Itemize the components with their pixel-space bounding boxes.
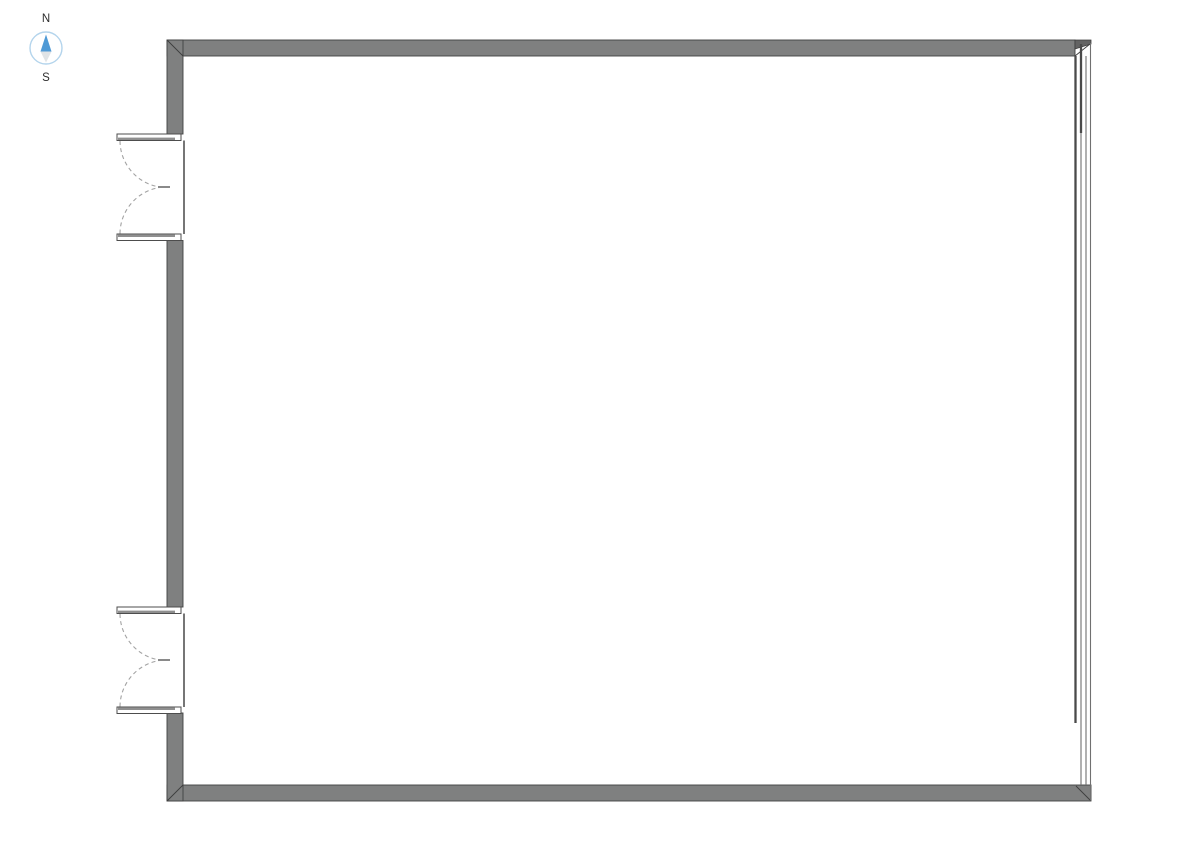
north-wall-end-wedge	[1075, 40, 1091, 49]
floor-plan-drawing: N S	[0, 0, 1190, 842]
door-jamb-top-band	[118, 611, 175, 613]
compass-south-label: S	[42, 72, 50, 84]
compass-north-label: N	[42, 13, 50, 25]
east-glazed-wall	[1076, 43, 1091, 800]
double-door-lower	[117, 607, 184, 714]
door-swing-arc-top	[120, 141, 160, 187]
door-jamb-top-band	[118, 138, 175, 140]
west-wall-middle	[167, 241, 183, 608]
south-wall	[167, 785, 1091, 801]
door-jamb-bottom-band	[118, 708, 175, 710]
floor-plan-canvas: N S	[0, 0, 1190, 842]
double-door-upper	[117, 134, 184, 241]
door-swing-arc-top	[120, 614, 160, 660]
door-swing-arc-bottom	[120, 188, 160, 234]
compass: N S	[30, 13, 62, 84]
north-wall	[167, 40, 1075, 56]
door-swing-arc-bottom	[120, 661, 160, 707]
walls	[167, 40, 1091, 801]
door-jamb-bottom-band	[118, 235, 175, 237]
